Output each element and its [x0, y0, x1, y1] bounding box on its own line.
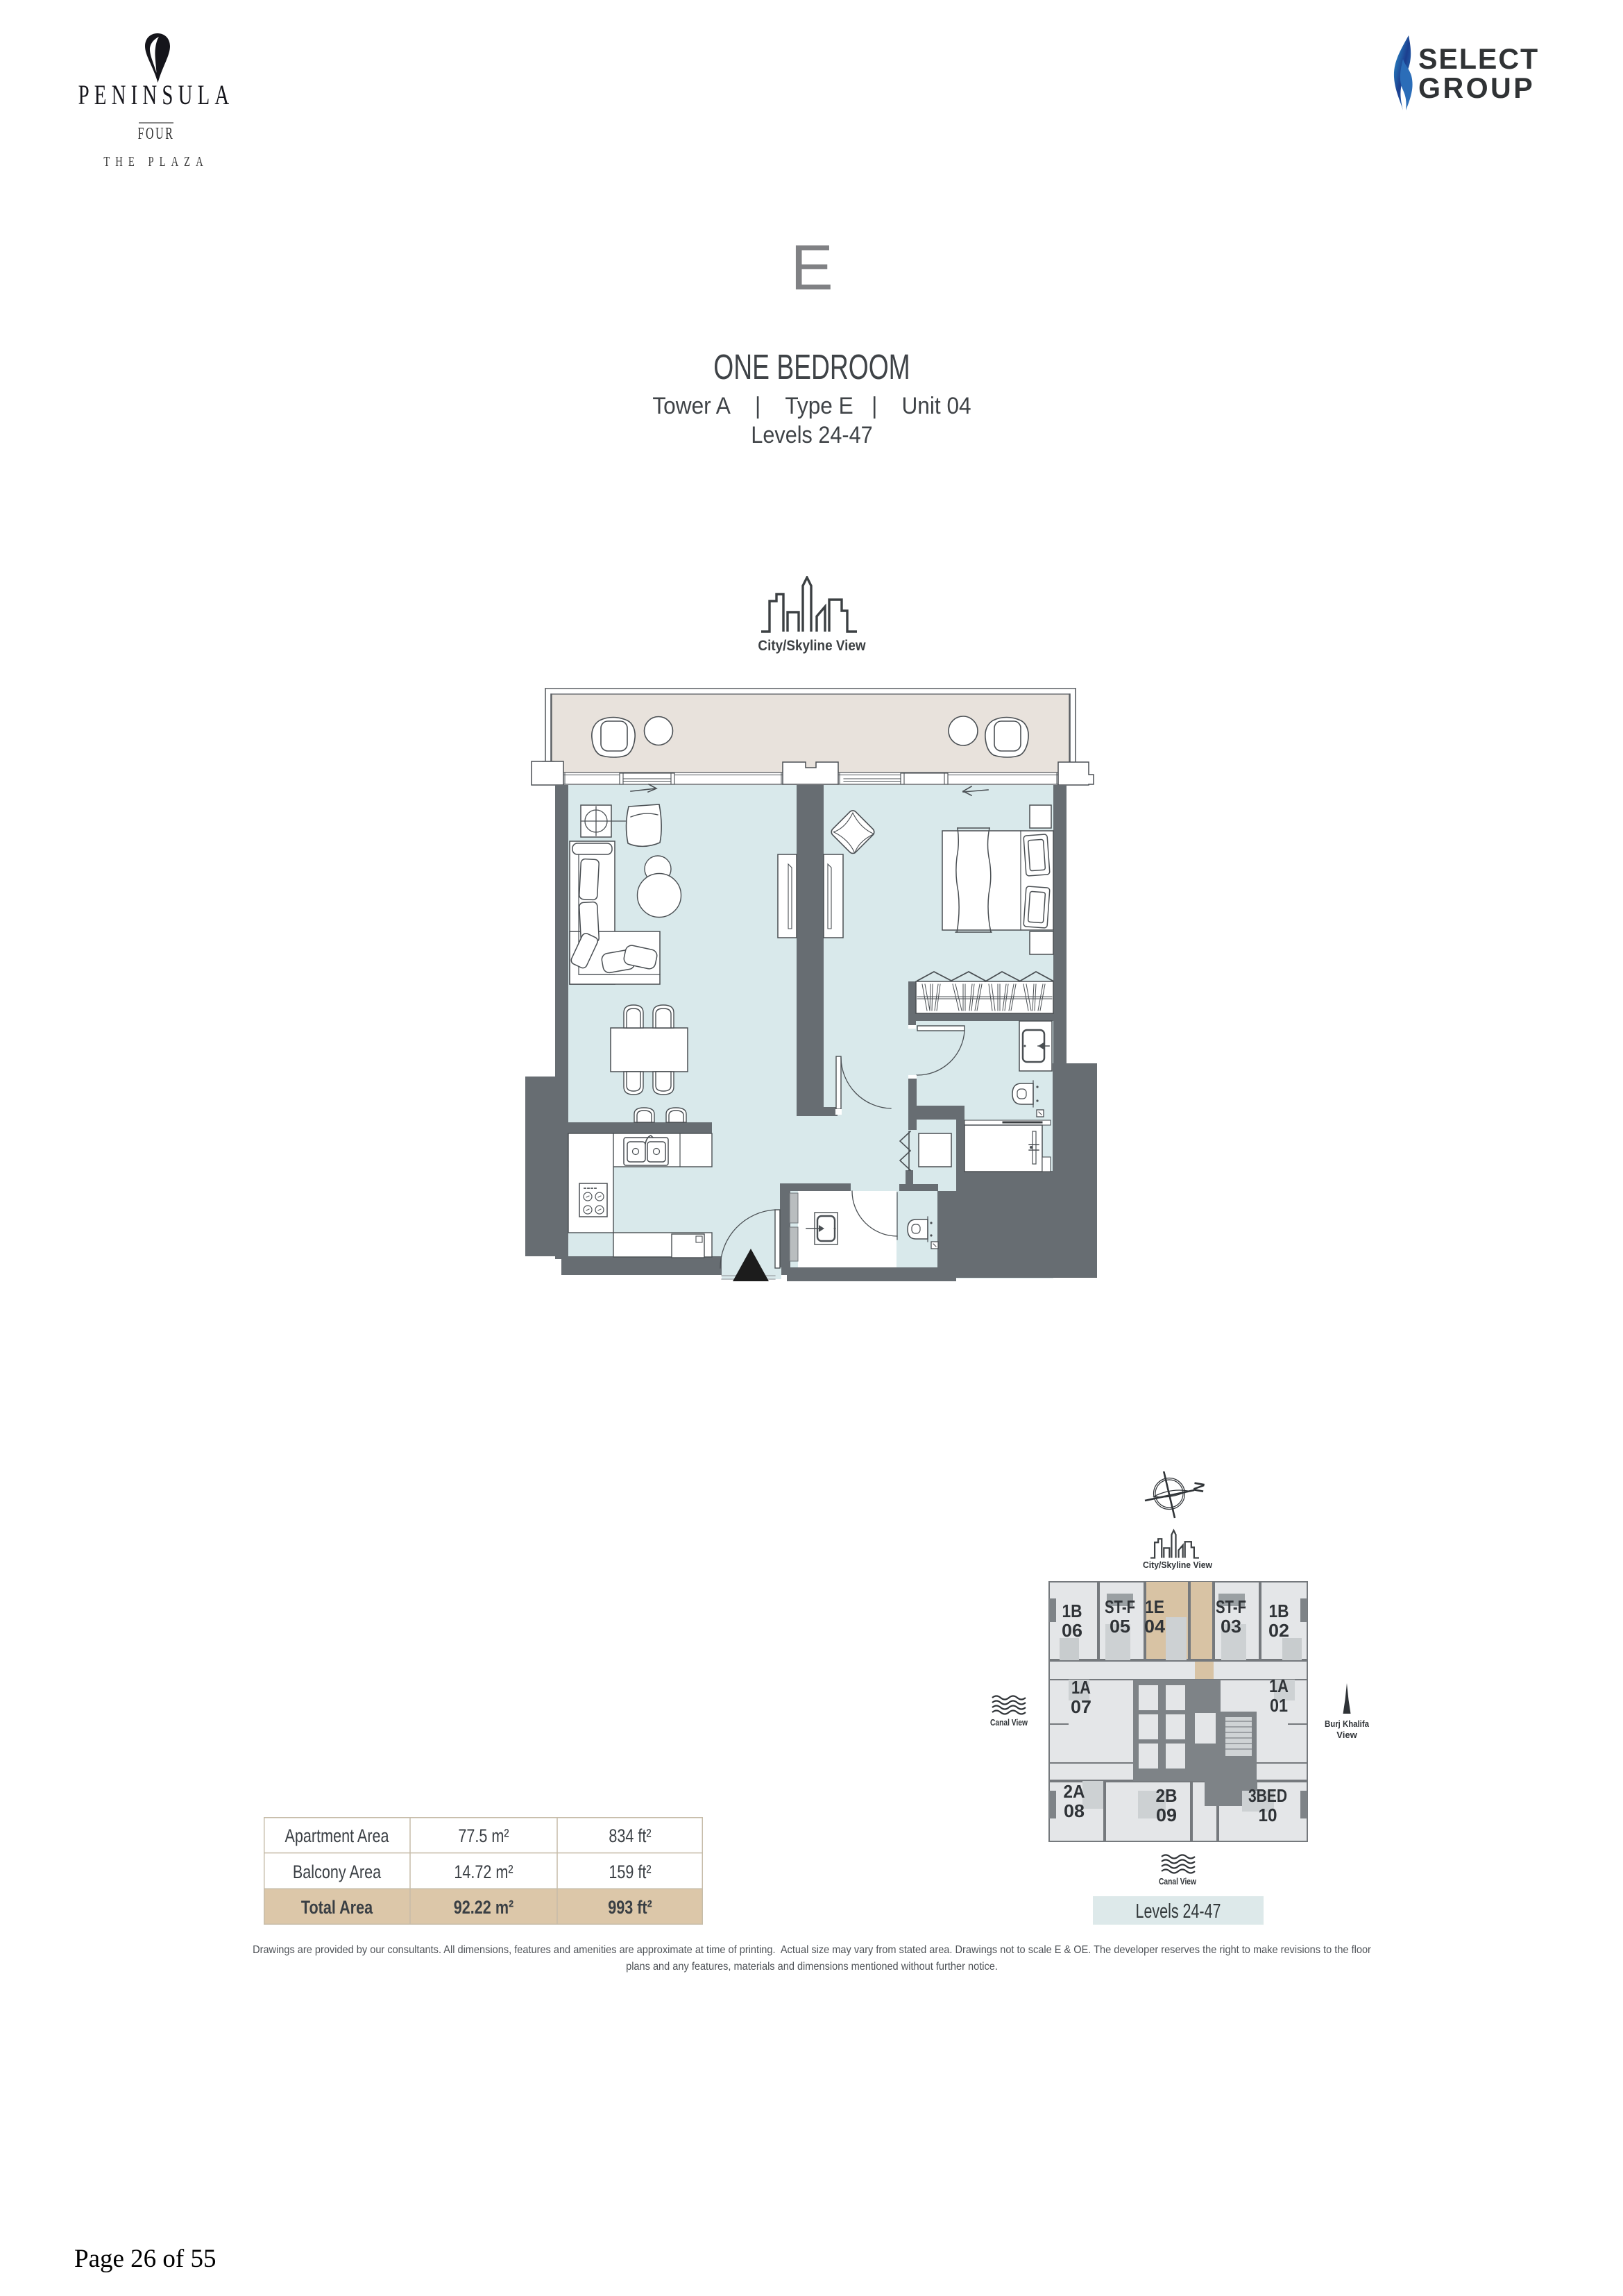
svg-text:10: 10: [1259, 1805, 1277, 1825]
svg-text:Canal View: Canal View: [1159, 1876, 1197, 1886]
svg-text:03: 03: [1221, 1616, 1241, 1637]
svg-text:1A: 1A: [1269, 1675, 1289, 1696]
svg-text:N: N: [1189, 1480, 1207, 1494]
svg-text:Canal View: Canal View: [990, 1717, 1028, 1728]
svg-text:01: 01: [1270, 1695, 1288, 1716]
svg-text:1E: 1E: [1145, 1596, 1164, 1617]
svg-text:04: 04: [1144, 1616, 1166, 1637]
svg-text:06: 06: [1062, 1620, 1082, 1641]
svg-text:3BED: 3BED: [1248, 1785, 1287, 1806]
svg-text:05: 05: [1110, 1616, 1130, 1637]
svg-text:1A: 1A: [1071, 1677, 1091, 1698]
svg-text:View: View: [1336, 1730, 1357, 1740]
svg-text:1B: 1B: [1062, 1601, 1082, 1621]
svg-text:City/Skyline View: City/Skyline View: [1143, 1560, 1213, 1570]
svg-text:02: 02: [1268, 1620, 1289, 1641]
svg-text:ST-F: ST-F: [1105, 1596, 1135, 1617]
svg-text:2A: 2A: [1064, 1781, 1085, 1802]
svg-text:08: 08: [1064, 1800, 1085, 1821]
svg-text:07: 07: [1071, 1696, 1091, 1717]
svg-text:1B: 1B: [1269, 1601, 1289, 1621]
svg-text:09: 09: [1156, 1805, 1177, 1825]
svg-text:Burj Khalifa: Burj Khalifa: [1325, 1719, 1370, 1729]
svg-text:2B: 2B: [1156, 1785, 1178, 1806]
svg-text:ST-F: ST-F: [1216, 1596, 1246, 1617]
